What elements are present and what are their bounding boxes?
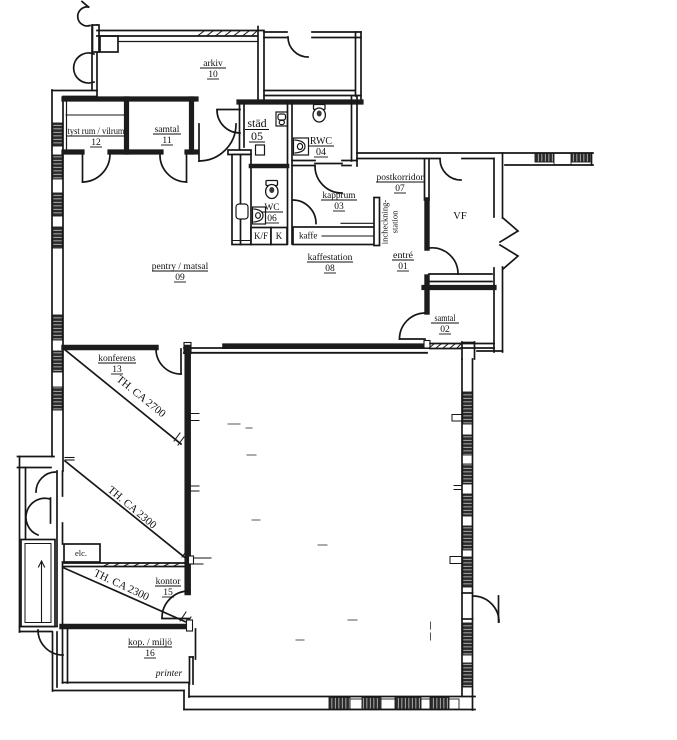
svg-text:kop. / miljö: kop. / miljö xyxy=(128,638,172,648)
svg-text:WC: WC xyxy=(264,203,279,213)
svg-text:07: 07 xyxy=(395,184,405,194)
svg-text:kaffe: kaffe xyxy=(299,231,317,241)
svg-text:pentry / matsal: pentry / matsal xyxy=(152,262,209,272)
svg-text:elc.: elc. xyxy=(75,548,87,558)
svg-text:K: K xyxy=(276,231,283,241)
svg-text:printer: printer xyxy=(155,669,183,679)
svg-text:tyst rum / vilrum: tyst rum / vilrum xyxy=(68,127,126,137)
svg-text:09: 09 xyxy=(175,273,185,283)
svg-text:04: 04 xyxy=(316,147,326,158)
svg-text:kapprum: kapprum xyxy=(323,191,357,201)
svg-text:08: 08 xyxy=(325,264,335,274)
svg-text:incheckning-: incheckning- xyxy=(380,200,390,245)
svg-text:konferens: konferens xyxy=(98,353,136,364)
svg-text:11: 11 xyxy=(162,136,171,146)
svg-text:kaffestation: kaffestation xyxy=(308,252,353,263)
svg-text:station: station xyxy=(390,210,400,233)
svg-text:15: 15 xyxy=(163,588,173,598)
svg-text:05: 05 xyxy=(251,129,263,143)
svg-text:städ: städ xyxy=(247,116,266,130)
svg-text:arkiv: arkiv xyxy=(203,59,223,69)
svg-text:samtal: samtal xyxy=(435,314,456,324)
svg-text:K/F: K/F xyxy=(254,231,268,241)
svg-text:06: 06 xyxy=(267,214,277,224)
svg-text:VF: VF xyxy=(453,211,467,222)
svg-text:entré: entré xyxy=(393,251,413,261)
svg-text:03: 03 xyxy=(334,202,344,212)
svg-text:01: 01 xyxy=(398,262,408,272)
svg-text:02: 02 xyxy=(440,325,450,335)
svg-text:10: 10 xyxy=(208,70,218,80)
svg-text:kontor: kontor xyxy=(156,577,182,587)
svg-text:postkorridor: postkorridor xyxy=(377,173,425,183)
svg-text:RWC: RWC xyxy=(310,136,333,147)
svg-text:12: 12 xyxy=(91,138,101,148)
svg-text:samtal: samtal xyxy=(155,125,180,135)
svg-text:16: 16 xyxy=(145,649,155,659)
